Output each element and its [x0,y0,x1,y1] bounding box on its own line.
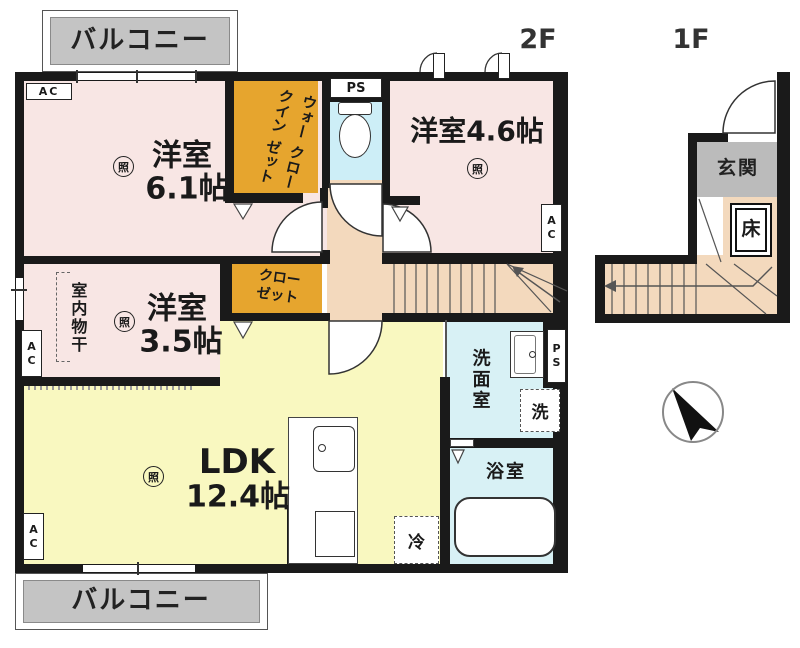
balcony-top-label: バルコニー [70,27,209,54]
light-mark-room35: 照 [114,311,135,332]
light-label: 照 [148,469,159,485]
window [83,565,195,572]
room46-name: 洋室4.6帖 [410,116,544,145]
wall [595,314,790,323]
washer-label: 洗 [532,398,549,423]
wall-hatch-strip [22,386,194,390]
balcony-bottom-label: バルコニー [71,587,210,614]
floor-1f-label: 1F [672,26,709,54]
wall [595,255,605,322]
wall [688,133,728,142]
washer-box: 洗 [520,389,560,432]
light-mark-room46: 照 [467,158,488,179]
ldk-size: 12.4帖 [186,481,290,513]
fridge-label: 冷 [408,528,425,553]
wall [445,320,447,378]
floor-storage-label: 床 [741,220,760,240]
wall [382,196,420,205]
fridge-box: 冷 [394,516,439,564]
wall [320,188,328,208]
light-label: 照 [119,314,130,330]
ac-label: AC [27,523,40,551]
wall [440,377,450,573]
hallway-area [327,180,383,321]
toilet-bowl-icon [339,114,371,158]
wall [382,72,390,188]
door-arc-entrance [723,81,775,133]
light-mark-ldk: 照 [143,466,164,487]
wall [220,256,232,320]
wall [777,72,790,323]
ac-label: AC [39,85,60,98]
entrance-label: 玄関 [717,159,759,179]
closet-label: クロー ゼット [245,266,312,314]
floor-2f-label: 2F [519,26,556,54]
wall [320,250,330,264]
light-mark-room61: 照 [113,156,134,177]
light-label: 照 [472,161,483,177]
ac-unit-room35: AC [21,330,42,377]
ac-unit-room61: AC [26,83,72,100]
wall [382,313,568,322]
ac-unit-room46: AC [541,204,562,252]
room61-name: 洋室 [152,140,212,172]
ac-label: AC [25,340,38,368]
ps-shaft-toilet: PS [330,78,382,98]
window-tick [76,70,78,83]
floor-storage-box: 床 [730,203,772,257]
casement-window [498,53,510,79]
window-tick [137,562,139,575]
window-tick [11,289,27,291]
room35-name: 洋室 [147,293,207,325]
wall [220,313,330,321]
compass-icon [662,381,724,443]
ac-label: AC [545,214,558,242]
laundry-label: 室内物干 [69,282,86,354]
window-tick [195,70,197,83]
room61-size: 6.1帖 [145,173,228,205]
wall [688,133,697,264]
wall [15,72,24,573]
bathtub-icon [454,497,556,557]
room35-size: 3.5帖 [139,326,222,358]
ps-label: PS [550,342,563,370]
wall [15,377,220,386]
washbasin-drain-icon [529,351,536,358]
floor-plan: 冷 洗 AC AC AC AC PS PS 床 照 照 照 照 バルコニー バル… [0,0,800,648]
ac-unit-ldk: AC [23,513,44,560]
wall [595,255,697,264]
stairs-1f-area [605,264,777,314]
door-leaf-bath [450,439,474,447]
ps-shaft-washroom: PS [547,329,566,383]
ldk-name: LDK [199,445,275,481]
stairs-2f-area [383,264,553,313]
wall [322,72,330,188]
casement-window [433,53,445,79]
wall [382,253,568,264]
window [16,278,23,320]
washroom-label: 洗面室 [470,349,489,412]
wall [15,256,330,264]
ps-label: PS [347,81,366,96]
faucet-icon [318,444,326,452]
light-label: 照 [118,159,129,175]
window-tick [136,70,138,83]
entrance-step-line [699,199,721,262]
stove-icon [315,511,355,557]
bath-label: 浴室 [486,464,526,483]
